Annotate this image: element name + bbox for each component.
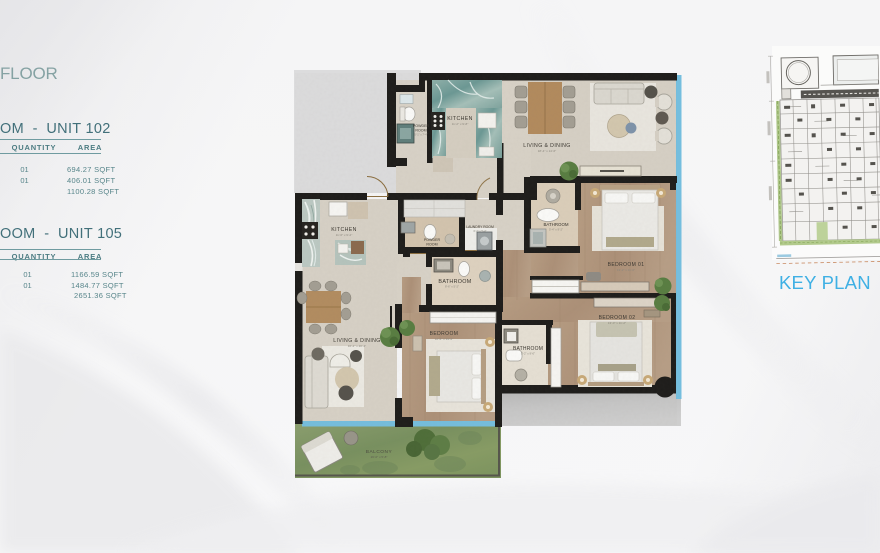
svg-text:KEY PLAN: KEY PLAN (779, 272, 871, 293)
